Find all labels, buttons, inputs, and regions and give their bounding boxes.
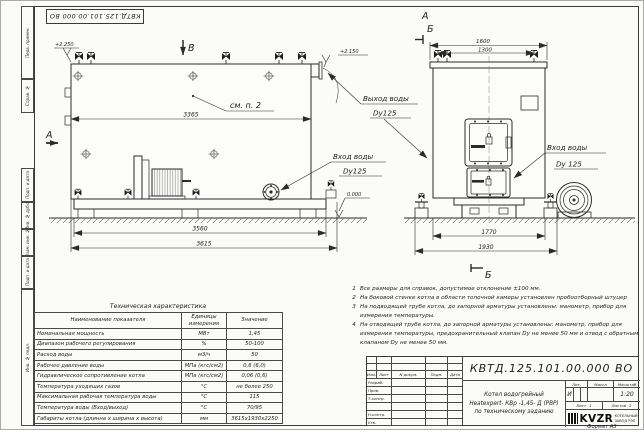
boiler-skid <box>74 199 326 209</box>
org-name: КОТЕЛЬНЫЙ ЗАВОД РЭП <box>615 414 638 423</box>
title-block-left-grid: Изм. Лист N докум. Подп. Дата Разраб. Пр… <box>367 357 463 427</box>
elevation-top-right: +2.150 <box>340 49 359 55</box>
staff-razrab: Разраб. <box>367 379 392 387</box>
note-1: 1 Все размеры для справок, допустимое от… <box>348 285 639 294</box>
anchor-right <box>544 208 557 218</box>
section-label-a-front: А <box>421 11 429 22</box>
view-label-b: В <box>188 43 195 54</box>
margin-label-podp-data-2: Подп. и дата <box>21 256 34 289</box>
scale-header: Масштаб <box>614 381 640 388</box>
note-3: 3 На подводящей трубе котла, до запорной… <box>348 303 639 321</box>
margin-label-inv-podl: Инв. № подл. <box>21 289 34 426</box>
inlet-water-label-front-1: Вход воды <box>547 143 587 152</box>
table-row: Температура воды (Вход/выход)°С70/95 <box>35 403 283 414</box>
staff-tkontr: Т.контр. <box>367 395 392 403</box>
dim-3615: 3615 <box>196 241 211 248</box>
notes-list: 1 Все размеры для справок, допустимое от… <box>348 285 639 348</box>
elevation-top-left: +2.250 <box>55 42 74 48</box>
table-row: Номинальная мощностьМВт1,45 <box>35 329 283 340</box>
spec-table: Наименование показателя Единицы измерени… <box>34 312 283 424</box>
margin-label-sprav-no: Справ. № <box>21 79 34 113</box>
dim-1600: 1600 <box>476 39 490 45</box>
see-note-ref: см. п. 2 <box>230 101 261 110</box>
motor <box>152 169 182 196</box>
sheet-cell: Лист1 <box>566 402 603 410</box>
note-2: 2 На боковой стенке котла в области топо… <box>348 294 639 303</box>
staff-nkontr: Н.контр. <box>367 411 392 419</box>
section-label-b-top: Б <box>427 24 434 35</box>
part-name: Котел водогрейный Heatexpert- КВр -1,45-… <box>463 381 566 427</box>
margin-label-inv-dubl: Инв. № дубл. <box>21 202 34 229</box>
front-view <box>404 56 635 223</box>
format-label: Формат А3 <box>587 424 617 430</box>
inlet-water-label-side-1: Вход воды <box>333 152 373 161</box>
table-row: Рабочее давление водыМПа (кгс/см2)0,6 (6… <box>35 360 283 371</box>
title-block: Изм. Лист N докум. Подп. Дата Разраб. Пр… <box>366 356 639 426</box>
table-row: Максимальная рабочая температура воды°С1… <box>35 392 283 403</box>
title-block-right: Лит. Масса Масштаб И 1:20 Лист1 Листов2 <box>566 381 640 427</box>
mass-value <box>588 388 614 402</box>
inlet-water-label-side-2: Dy125 <box>343 167 367 176</box>
staff-utv: Утв. <box>367 419 392 426</box>
dim-3365: 3365 <box>183 112 198 119</box>
doc-number: КВТД.125.101.00.000 ВО <box>463 357 640 381</box>
sheets-cell: Листов2 <box>603 402 640 410</box>
margin-label-podp-data-1: Подп. и дата <box>21 168 34 202</box>
spec-table-block: Техническая характеристика Наименование … <box>34 301 282 424</box>
margin-label-vzam-inv: Взам. инв. № <box>21 229 34 256</box>
side-view <box>49 62 367 223</box>
outlet-water-label-2: Dy125 <box>373 109 397 118</box>
spec-table-title: Техническая характеристика <box>34 301 282 312</box>
elevation-ground: 0.000 <box>347 192 361 198</box>
spec-header-row: Наименование показателя Единицы измерени… <box>35 313 283 329</box>
lit-header: Лит. <box>566 381 588 388</box>
drawing-sheet: Перв. примен. Справ. № Подп. и дата Инв.… <box>0 0 644 430</box>
scale-value: 1:20 <box>614 388 640 402</box>
drawing-views: +2.250 +2.150 0.000 В А см. п. 2 3365 35… <box>34 6 639 284</box>
outlet-water-label-1: Выход воды <box>363 94 409 103</box>
table-row: Габариты котла (длинна х ширина х высота… <box>35 413 283 424</box>
dim-1770: 1770 <box>481 229 496 236</box>
kvzr-logo: KVZR <box>580 413 614 425</box>
margin-label-perv-primen: Перв. примен. <box>21 6 34 79</box>
table-row: Температура уходящих газов°Сне более 250 <box>35 381 283 392</box>
lit-value: И <box>566 388 574 402</box>
boiler-body-side <box>71 64 311 199</box>
top-plate <box>430 62 547 68</box>
section-label-a-side: А <box>45 130 53 141</box>
kvzr-emblem-icon <box>568 413 578 424</box>
table-row: Диапазон рабочего регулирования%50-100 <box>35 339 283 350</box>
section-label-b-bottom: Б <box>485 270 492 281</box>
staff-prov: Пров. <box>367 387 392 395</box>
dim-1300: 1300 <box>478 48 492 54</box>
table-row: Гидравлическое сопротивление котлаМПа (к… <box>35 371 283 382</box>
dim-3560: 3560 <box>192 226 207 233</box>
inlet-water-label-front-2: Dy 125 <box>556 160 582 169</box>
note-4: 4 На отводящей трубе котла, до запорной … <box>348 321 639 348</box>
outlet-pipe <box>311 64 319 77</box>
table-row: Расход водым3/ч50 <box>35 350 283 361</box>
mass-header: Масса <box>588 381 614 388</box>
dim-1930: 1930 <box>478 244 493 251</box>
anchor-left <box>415 208 428 218</box>
